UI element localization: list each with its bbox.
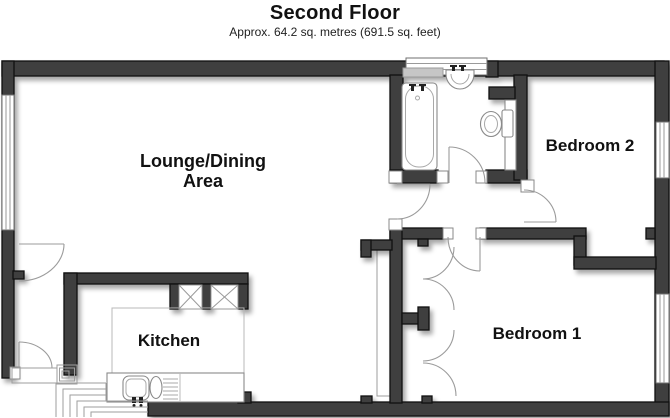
storage-unit-x-icon [179, 285, 202, 309]
sink-tap-icon [132, 397, 136, 403]
basin-tap-icon [452, 66, 455, 71]
toilet-cistern [502, 110, 513, 137]
cupboard-strip [377, 250, 391, 396]
stair-step-line [91, 412, 148, 417]
doors [19, 147, 556, 396]
basin-outer [446, 70, 474, 89]
floorplan-page: Second Floor Approx. 64.2 sq. metres (69… [0, 0, 670, 418]
toilet [481, 110, 514, 137]
frame-hall-door-bottom [389, 219, 402, 230]
bedroom2-door [524, 190, 556, 222]
wall-lobby-tick [13, 271, 24, 279]
kitchen-label: Kitchen [138, 331, 200, 350]
bathroom-shelf [403, 68, 443, 77]
wall-wardrobe-bottom-hinge [422, 396, 432, 403]
kitchen-sink-bowl [123, 376, 149, 400]
bedroom1-label: Bedroom 1 [493, 324, 582, 343]
bath-tap-icon [409, 84, 416, 86]
hallway-door [397, 184, 430, 219]
sink-tap-icon [139, 397, 143, 403]
wall-alcove-right-stub [646, 228, 655, 239]
wall-wardrobe-top-hinge [418, 239, 428, 246]
kitchen-sink-half-bowl [150, 377, 162, 399]
storage-unit-x-icon [211, 285, 238, 309]
bath-tap-icon [411, 86, 414, 91]
lobby-upper-door [19, 244, 64, 281]
stair-step-line [70, 395, 106, 417]
bath [402, 83, 437, 170]
lounge-dining-label-line1: Lounge/Dining [140, 151, 266, 171]
wall-toilet-niche-stub [489, 87, 515, 99]
floorplan-drawing: Lounge/Dining Area Kitchen Bedroom 2 Bed… [0, 0, 670, 418]
frame-hall-door-top [389, 171, 402, 183]
window-lounge-left [2, 95, 14, 230]
bedroom2-label: Bedroom 2 [546, 136, 635, 155]
wall-exterior-top [2, 61, 664, 76]
bath-tap-icon [421, 86, 424, 91]
wall-toilet-niche-hang [486, 61, 498, 77]
wall-bathroom-left [390, 75, 403, 171]
lobby-lower-door [19, 342, 52, 368]
kitchen-counter [107, 373, 244, 407]
wall-kitchen-unit-stub3 [238, 284, 248, 309]
basin-tap-icon [461, 66, 464, 71]
frame-bedroom1-door-right [476, 228, 486, 239]
bath-tap-icon [419, 84, 426, 86]
walls [2, 61, 669, 416]
wall-wardrobe-mid-cap [418, 307, 429, 330]
wall-bedroom1-bedroom2 [574, 257, 656, 269]
wall-hall-bedroom2 [480, 228, 586, 239]
wall-kitchen-unit-stub1 [170, 284, 179, 309]
wall-bedroom1-west [390, 228, 402, 403]
wall-exterior-bottom [148, 402, 669, 416]
wall-kitchen-left [64, 273, 77, 375]
window-bedroom1-right [656, 294, 669, 383]
wall-kitchen-unit-stub2 [202, 284, 211, 309]
bath-outer [402, 83, 437, 170]
hall-cupboard-strip [377, 250, 391, 396]
lounge-dining-label-line2: Area [183, 171, 224, 191]
fixtures [107, 65, 516, 407]
wall-bottom-tick [361, 396, 372, 403]
wall-kitchen-top [64, 273, 248, 284]
stair-step-line [77, 401, 148, 417]
wall-hall-arm-cap [361, 240, 371, 257]
frame-bath-door-left [437, 171, 448, 183]
window-bedroom2-right [656, 122, 669, 178]
